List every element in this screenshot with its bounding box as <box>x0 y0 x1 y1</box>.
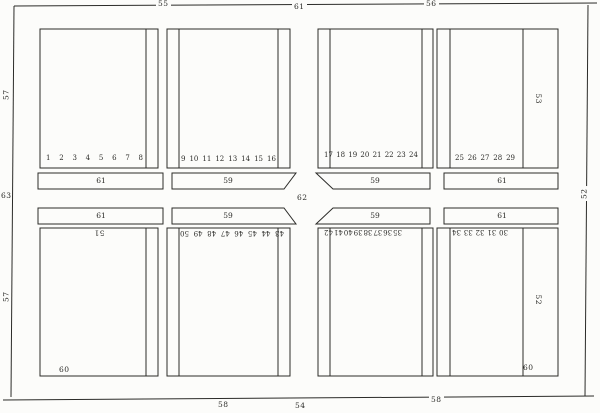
bottom-panel-3 <box>318 228 433 376</box>
panel-number: 23 <box>397 152 406 159</box>
bar-top-2-label: 59 <box>208 177 248 185</box>
panel-number: 13 <box>228 156 237 163</box>
panel-number: 20 <box>360 152 369 159</box>
center-gap-label: 62 <box>297 194 308 202</box>
bar-bottom-1-label: 61 <box>81 212 121 220</box>
figure-drawing <box>0 0 600 413</box>
left-rail-lower-label: 57 <box>3 291 11 302</box>
panel-number: 7 <box>125 155 129 162</box>
bottom-right-corner-label: 60 <box>523 364 534 372</box>
panel-number: 49 <box>194 229 203 236</box>
top-left-rail-label: 55 <box>156 0 171 8</box>
top-right-column-label: 53 <box>535 93 543 104</box>
panel-number: 4 <box>86 155 90 162</box>
panel-number: 14 <box>241 156 250 163</box>
bar-top-3-label: 59 <box>355 177 395 185</box>
panel-number: 50 <box>180 229 189 236</box>
panel-number: 12 <box>215 156 224 163</box>
panel-number: 11 <box>202 156 211 163</box>
panel-number: 48 <box>207 229 216 236</box>
panel-number: 41 <box>334 228 343 235</box>
border-left-line <box>11 6 14 397</box>
panel-number: 46 <box>234 229 243 236</box>
panel-number: 45 <box>248 229 257 236</box>
panel-number: 25 <box>455 155 464 162</box>
top-panel-3-numbers: 17 18 19 20 21 22 23 24 <box>324 152 418 159</box>
panel-number: 2 <box>59 155 63 162</box>
bottom-panel-4-numbers: 30 31 32 33 34 <box>452 228 508 235</box>
top-panel-2-numbers: 9 10 11 12 13 14 15 16 <box>181 156 276 163</box>
panel-number: 27 <box>481 155 490 162</box>
top-panel-1 <box>40 29 158 168</box>
panel-number: 5 <box>99 155 103 162</box>
panel-number: 17 <box>324 152 333 159</box>
panel-number: 34 <box>452 228 461 235</box>
top-panel-1-numbers: 1 2 3 4 5 6 7 8 <box>46 155 143 162</box>
panel-number: 38 <box>364 228 373 235</box>
panel-number: 10 <box>189 156 198 163</box>
bottom-right-column-label: 52 <box>535 294 543 305</box>
panel-number: 35 <box>393 228 402 235</box>
panel-number: 16 <box>267 156 276 163</box>
panel-number: 26 <box>468 155 477 162</box>
bottom-left-panel-label: 51 <box>94 229 105 237</box>
panel-number: 22 <box>385 152 394 159</box>
panel-number: 8 <box>139 155 143 162</box>
panel-number: 47 <box>221 229 230 236</box>
top-panel-4-numbers: 25 26 27 28 29 <box>455 155 515 162</box>
bottom-panel-2-numbers: 43 44 45 46 47 48 49 50 <box>180 229 284 236</box>
panel-number: 39 <box>354 228 363 235</box>
panel-number: 18 <box>336 152 345 159</box>
left-center-label: 63 <box>1 192 12 200</box>
bottom-panel-3-numbers: 35 36 37 38 39 40 41 42 <box>324 228 402 235</box>
panel-number: 28 <box>493 155 502 162</box>
panel-number: 43 <box>275 229 284 236</box>
bar-top-1-label: 61 <box>81 177 121 185</box>
panel-number: 6 <box>112 155 116 162</box>
bar-bottom-3-label: 59 <box>355 212 395 220</box>
panel-number: 32 <box>476 228 485 235</box>
panel-number: 3 <box>72 155 76 162</box>
bottom-panel-1 <box>40 228 158 376</box>
panel-number: 44 <box>262 229 271 236</box>
border-bottom-line <box>3 396 594 400</box>
right-center-label: 52 <box>581 186 589 201</box>
panel-number: 24 <box>409 152 418 159</box>
panel-number: 30 <box>499 228 508 235</box>
top-right-rail-label: 56 <box>424 0 439 8</box>
panel-number: 29 <box>506 155 515 162</box>
top-panel-3 <box>318 29 433 168</box>
panel-number: 21 <box>373 152 382 159</box>
top-center-label: 61 <box>292 3 307 11</box>
bottom-right-rail-label: 58 <box>429 396 444 404</box>
bar-bottom-2-label: 59 <box>208 212 248 220</box>
bar-bottom-4-label: 61 <box>482 212 522 220</box>
bottom-left-corner-label: 60 <box>59 366 70 374</box>
bottom-center-label: 54 <box>295 402 306 410</box>
panel-number: 37 <box>373 228 382 235</box>
panel-number: 1 <box>46 155 50 162</box>
panel-number: 19 <box>348 152 357 159</box>
patent-figure: 55 61 56 57 63 57 52 58 54 58 62 53 52 5… <box>0 0 600 413</box>
panel-number: 33 <box>464 228 473 235</box>
top-panel-2 <box>167 29 290 168</box>
panel-number: 40 <box>344 228 353 235</box>
panel-number: 9 <box>181 156 185 163</box>
panel-number: 42 <box>324 228 333 235</box>
bar-top-4-label: 61 <box>482 177 522 185</box>
panel-number: 36 <box>383 228 392 235</box>
bottom-panel-2 <box>167 228 290 376</box>
bottom-left-rail-label: 58 <box>218 401 229 409</box>
panel-number: 31 <box>487 228 496 235</box>
left-rail-upper-label: 57 <box>3 89 11 100</box>
panel-number: 15 <box>254 156 263 163</box>
